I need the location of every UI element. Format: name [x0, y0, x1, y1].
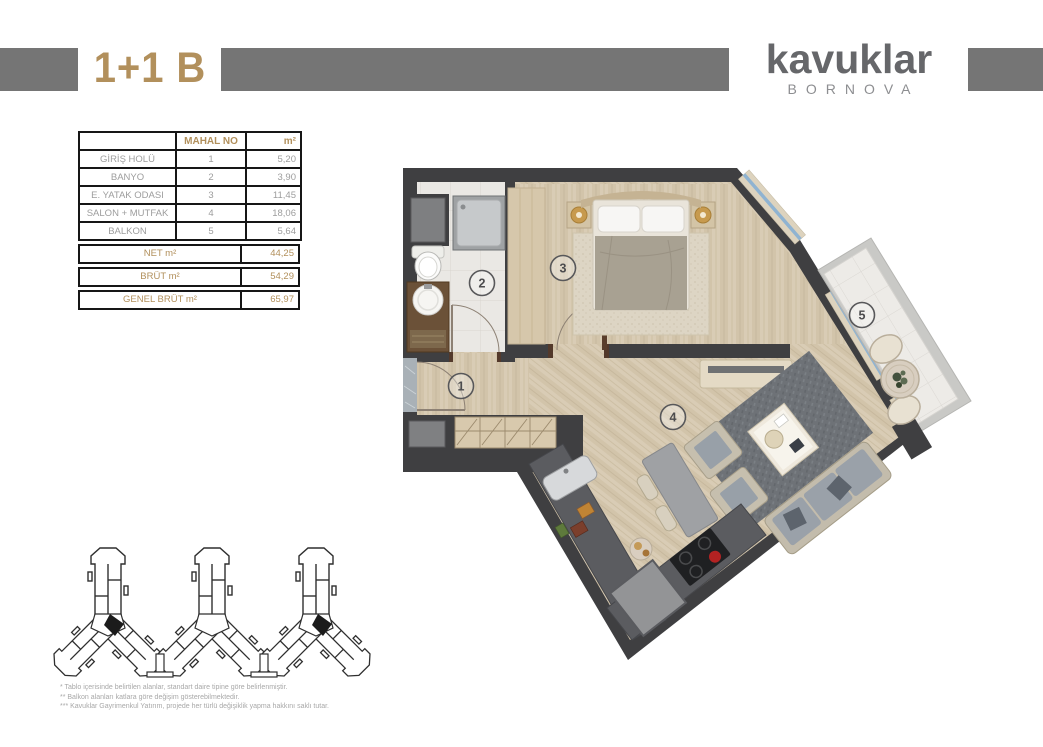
svg-text:2: 2	[479, 277, 486, 291]
wardrobe	[455, 417, 556, 448]
total-value: 44,25	[242, 246, 298, 262]
footnote-line: ** Balkon alanları katlara göre değişim …	[60, 693, 329, 703]
footnote-line: *** Kavuklar Gayrimenkul Yatırım, projed…	[60, 702, 329, 712]
room-no-cell: 1	[176, 150, 246, 168]
floor-plan: 1 2 3 4 5	[395, 160, 995, 670]
room-name-cell: GİRİŞ HOLÜ	[79, 150, 176, 168]
total-value: 65,97	[242, 292, 298, 308]
room-number-badge-3: 3	[551, 256, 576, 281]
svg-text:3: 3	[560, 262, 567, 276]
room-name-cell: BANYO	[79, 168, 176, 186]
room-name-cell: BALKON	[79, 222, 176, 240]
svg-text:5: 5	[859, 309, 866, 323]
table-row: SALON + MUTFAK 4 18,06	[79, 204, 301, 222]
table-row: E. YATAK ODASI 3 11,45	[79, 186, 301, 204]
table-row: BALKON 5 5,64	[79, 222, 301, 240]
bedroom-closet	[508, 188, 545, 344]
room-no-cell: 3	[176, 186, 246, 204]
bed	[581, 191, 701, 310]
table-row: GİRİŞ HOLÜ 1 5,20	[79, 150, 301, 168]
footnote-line: * Tablo içerisinde belirtilen alanlar, s…	[60, 683, 329, 693]
svg-text:1: 1	[458, 380, 465, 394]
site-tower-2	[151, 548, 273, 683]
unit-type-title: 1+1 B	[85, 42, 215, 94]
brochure-page: 1+1 B kavuklar BORNOVA MAHAL NO m² GİRİŞ…	[0, 0, 1043, 747]
total-row-net: NET m² 44,25	[78, 244, 300, 264]
area-table: MAHAL NO m² GİRİŞ HOLÜ 1 5,20 BANYO 2 3,…	[78, 131, 300, 310]
site-tower-1	[47, 548, 169, 683]
brand-subtitle: BORNOVA	[733, 81, 965, 97]
footnotes: * Tablo içerisinde belirtilen alanlar, s…	[60, 683, 329, 712]
site-plan	[40, 535, 390, 685]
total-value: 54,29	[242, 269, 298, 285]
site-tower-3	[255, 548, 377, 683]
total-label: GENEL BRÜT m²	[80, 292, 242, 308]
room-number-badge-5: 5	[850, 303, 875, 328]
room-area-cell: 18,06	[246, 204, 301, 222]
room-area-cell: 11,45	[246, 186, 301, 204]
kitchen-stool	[630, 538, 652, 560]
total-row-genel-brut: GENEL BRÜT m² 65,97	[78, 290, 300, 310]
room-area-cell: 5,64	[246, 222, 301, 240]
room-area-cell: 3,90	[246, 168, 301, 186]
total-label: NET m²	[80, 246, 242, 262]
table-row: BANYO 2 3,90	[79, 168, 301, 186]
total-label: BRÜT m²	[80, 269, 242, 285]
brand-logo: kavuklar BORNOVA	[733, 38, 965, 97]
room-number-badge-4: 4	[661, 405, 686, 430]
col-header-mahal-no: MAHAL NO	[176, 132, 246, 150]
hall-shaft	[409, 421, 445, 447]
total-row-brut: BRÜT m² 54,29	[78, 267, 300, 287]
vanity-sink	[407, 282, 449, 352]
room-name-cell: E. YATAK ODASI	[79, 186, 176, 204]
room-area-cell: 5,20	[246, 150, 301, 168]
room-no-cell: 2	[176, 168, 246, 186]
utility-shaft	[407, 194, 449, 246]
room-name-cell: SALON + MUTFAK	[79, 204, 176, 222]
header-bar-right	[968, 48, 1043, 91]
room-no-cell: 4	[176, 204, 246, 222]
shower	[453, 196, 505, 250]
room-no-cell: 5	[176, 222, 246, 240]
col-header-m2: m²	[246, 132, 301, 150]
brand-name: kavuklar	[733, 38, 965, 80]
col-header-room	[79, 132, 176, 150]
table-header-row: MAHAL NO m²	[79, 132, 301, 150]
svg-text:4: 4	[670, 411, 677, 425]
room-number-badge-1: 1	[449, 374, 474, 399]
header-bar-middle	[221, 48, 729, 91]
header-bar-left	[0, 48, 78, 91]
room-number-badge-2: 2	[470, 271, 495, 296]
